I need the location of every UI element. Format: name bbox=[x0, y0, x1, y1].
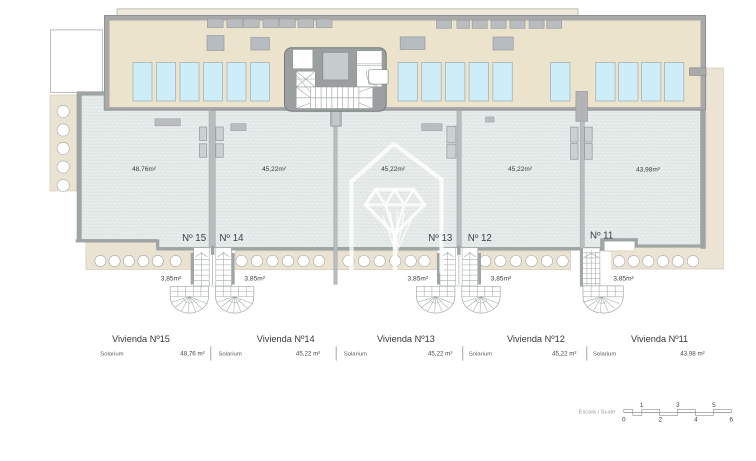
svg-text:Solarium: Solarium bbox=[100, 351, 123, 357]
svg-text:48,76 m²: 48,76 m² bbox=[180, 350, 204, 357]
svg-text:Nº 11: Nº 11 bbox=[590, 231, 613, 242]
svg-text:Solarium: Solarium bbox=[593, 351, 616, 357]
svg-text:Nº 14: Nº 14 bbox=[219, 233, 244, 244]
svg-text:1: 1 bbox=[640, 402, 644, 409]
svg-text:3,85m²: 3,85m² bbox=[408, 275, 429, 282]
svg-text:Solarium: Solarium bbox=[469, 351, 492, 357]
svg-text:Vivienda Nº14: Vivienda Nº14 bbox=[257, 334, 315, 344]
svg-text:Vivienda Nº15: Vivienda Nº15 bbox=[112, 334, 170, 344]
svg-text:45,22 m²: 45,22 m² bbox=[552, 350, 576, 357]
svg-text:Escala / Scale: Escala / Scale bbox=[578, 410, 615, 416]
svg-text:45,22m²: 45,22m² bbox=[508, 166, 533, 173]
svg-text:3,85m²: 3,85m² bbox=[244, 275, 265, 282]
svg-text:0: 0 bbox=[622, 417, 626, 424]
svg-text:Vivienda Nº12: Vivienda Nº12 bbox=[507, 334, 565, 344]
svg-text:48,76m²: 48,76m² bbox=[132, 166, 157, 173]
svg-text:43,98 m²: 43,98 m² bbox=[680, 350, 704, 357]
svg-text:45,22m²: 45,22m² bbox=[381, 166, 406, 173]
svg-text:Solarium: Solarium bbox=[219, 351, 242, 357]
svg-text:Nº 13: Nº 13 bbox=[428, 233, 452, 244]
svg-text:3,85m²: 3,85m² bbox=[613, 275, 634, 282]
svg-text:4: 4 bbox=[694, 417, 698, 424]
svg-text:45,22m²: 45,22m² bbox=[262, 166, 287, 173]
svg-text:Solarium: Solarium bbox=[344, 351, 367, 357]
svg-text:43,98m²: 43,98m² bbox=[636, 167, 661, 174]
svg-text:45,22 m²: 45,22 m² bbox=[296, 350, 320, 357]
svg-text:Vivienda Nº13: Vivienda Nº13 bbox=[377, 334, 435, 344]
svg-text:Vivienda Nº11: Vivienda Nº11 bbox=[631, 334, 688, 344]
svg-text:Nº 15: Nº 15 bbox=[182, 233, 206, 244]
svg-text:3: 3 bbox=[676, 402, 680, 409]
svg-text:5: 5 bbox=[712, 402, 716, 409]
svg-text:45,22 m²: 45,22 m² bbox=[428, 350, 452, 357]
svg-text:2: 2 bbox=[659, 417, 663, 424]
svg-text:6: 6 bbox=[730, 417, 734, 424]
svg-text:3,85m²: 3,85m² bbox=[161, 275, 182, 282]
svg-text:Nº 12: Nº 12 bbox=[468, 233, 492, 244]
svg-text:3,85m²: 3,85m² bbox=[491, 275, 512, 282]
